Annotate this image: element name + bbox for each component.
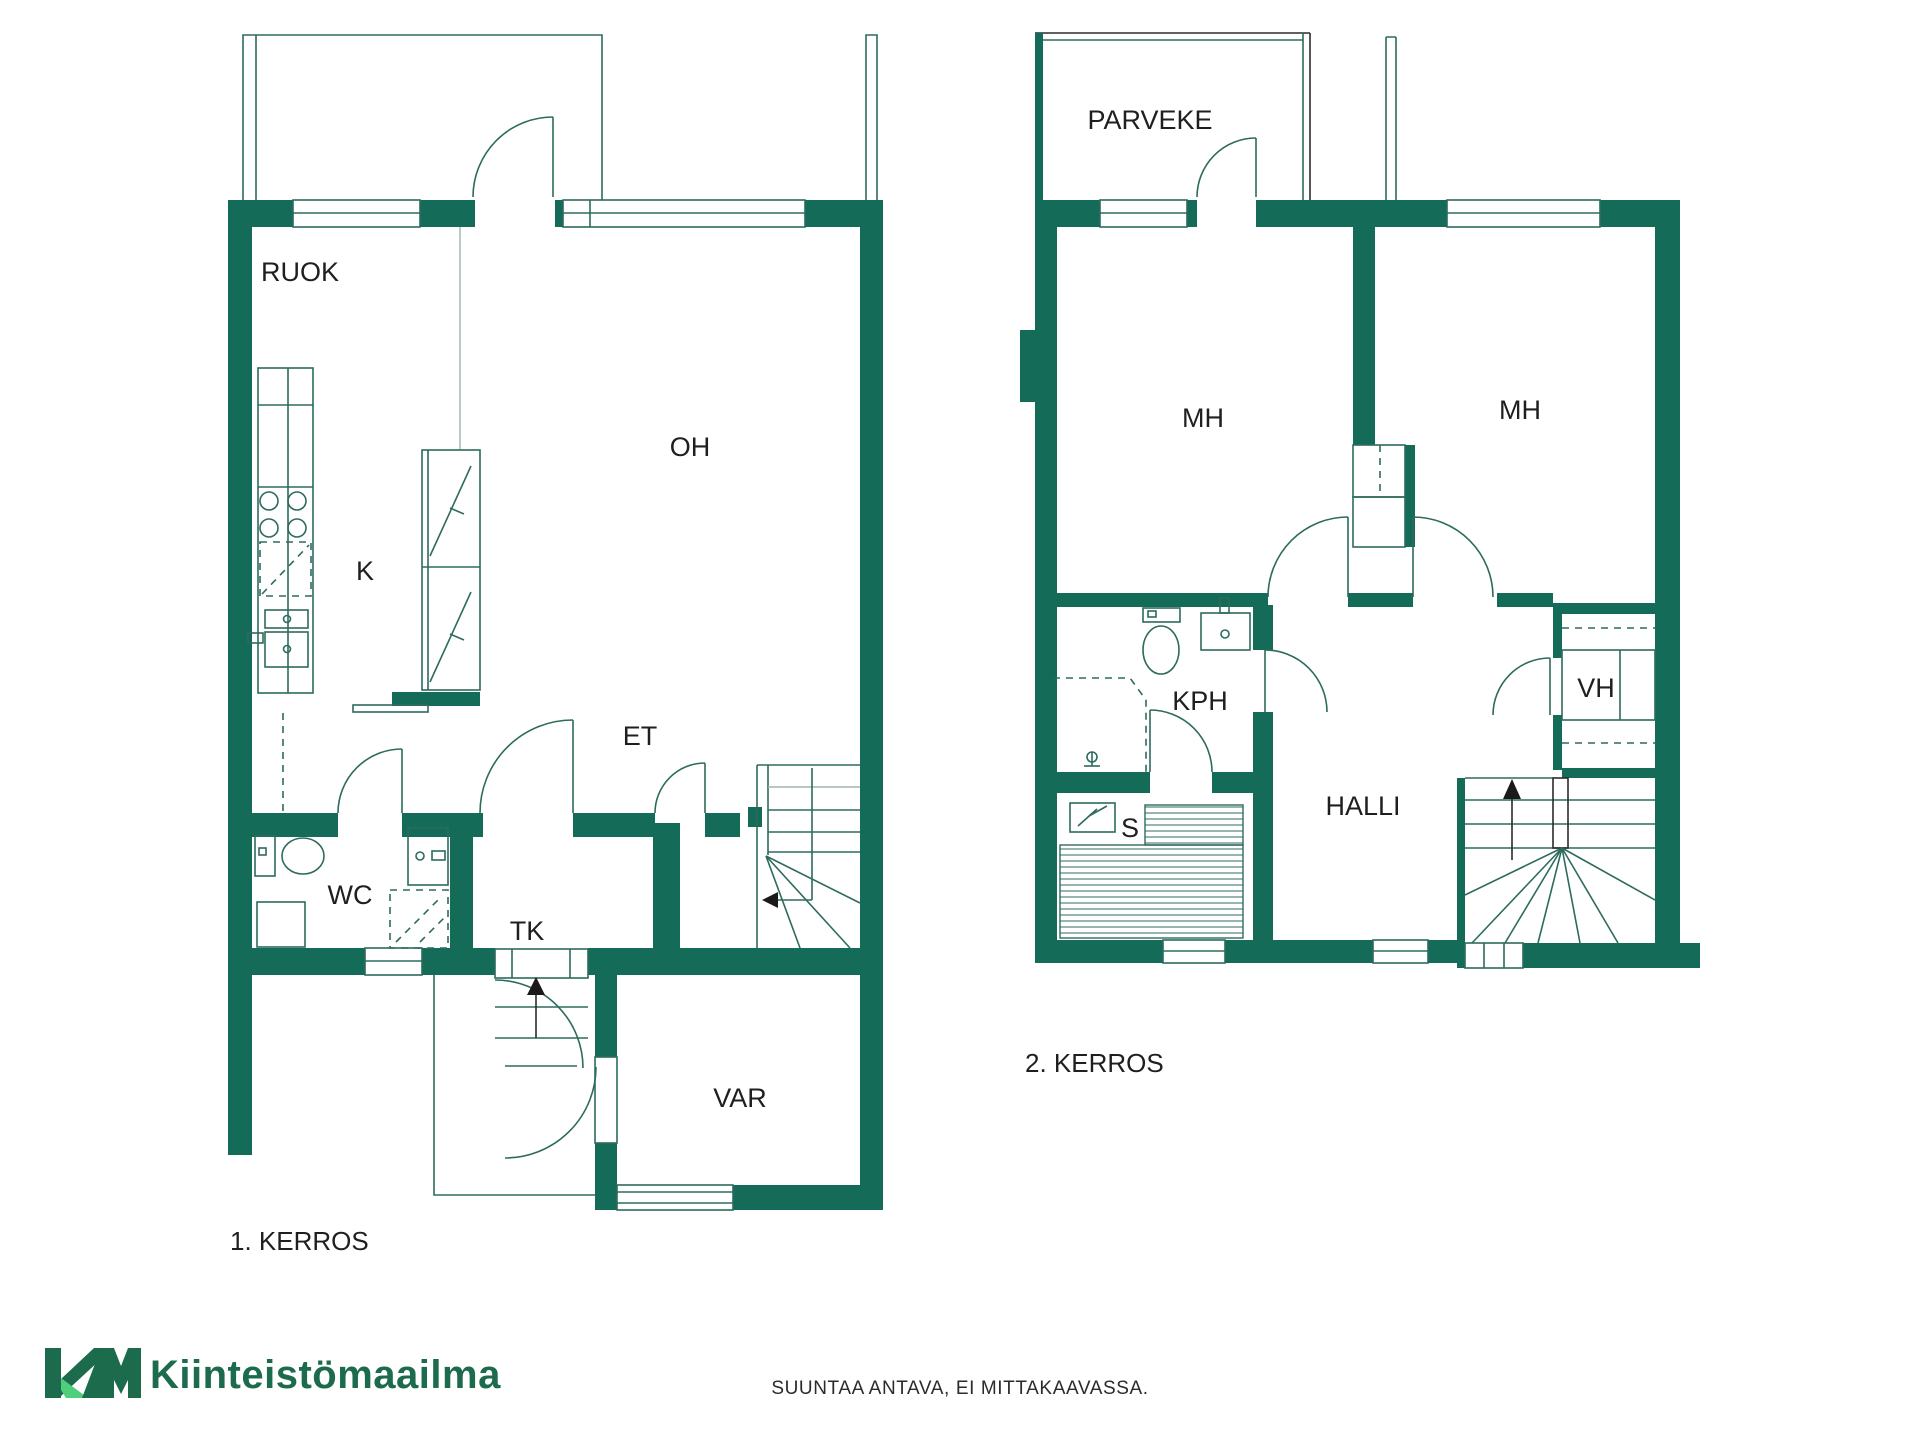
wall — [1428, 940, 1457, 963]
dishwasher-icon — [260, 542, 311, 596]
room-label-s: S — [1121, 813, 1139, 843]
kph-sauna-door — [1150, 710, 1212, 772]
wall — [1562, 768, 1655, 778]
kph-fixtures — [1053, 598, 1250, 772]
footer: Kiinteistömaailma SUUNTAA ANTAVA, EI MIT… — [45, 1348, 1149, 1399]
stair-nook-door — [655, 763, 705, 813]
wall — [422, 948, 495, 975]
room-label-et: ET — [623, 721, 658, 751]
wall — [1187, 200, 1197, 227]
var-door-opening — [595, 1057, 617, 1143]
window — [293, 200, 420, 227]
sauna-benches — [1060, 845, 1243, 938]
sauna — [1060, 803, 1243, 938]
window — [1373, 940, 1428, 963]
disclaimer-text: SUUNTAA ANTAVA, EI MITTAKAAVASSA. — [771, 1378, 1148, 1399]
toilet-icon — [255, 836, 324, 876]
doors-1f — [338, 117, 705, 1158]
brand-name: Kiinteistömaailma — [150, 1353, 501, 1397]
wall — [1053, 593, 1268, 607]
kitchen-counter-icon — [248, 368, 313, 693]
hall-cabinets — [1353, 445, 1405, 547]
wall — [1553, 603, 1655, 614]
wall — [420, 200, 475, 227]
toilet-icon — [1143, 608, 1180, 674]
sauna-heater-icon — [1070, 803, 1115, 832]
sauna-benches — [1145, 805, 1243, 845]
wall — [573, 813, 655, 837]
room-label-ruok: RUOK — [261, 257, 339, 287]
wall — [1225, 940, 1373, 963]
floorplan-canvas: RUOK K OH ET WC TK VAR 1. KERROS — [0, 0, 1920, 1440]
wall — [1212, 772, 1253, 793]
wall — [1253, 712, 1273, 963]
caption-floor-1: 1. KERROS — [230, 1226, 369, 1256]
exterior-door-threshold — [495, 949, 588, 978]
window — [1465, 943, 1523, 968]
window — [563, 200, 805, 227]
porch-outline — [434, 975, 595, 1195]
room-label-kph: KPH — [1172, 686, 1228, 716]
caption-floor-2: 2. KERROS — [1025, 1048, 1164, 1078]
stairs-down-arrow-icon — [762, 892, 778, 908]
wall — [1553, 603, 1562, 658]
room-label-wc: WC — [328, 880, 373, 910]
room-label-var: VAR — [713, 1083, 767, 1113]
wall — [595, 1185, 617, 1210]
floor-plan-1f: RUOK K OH ET WC TK VAR 1. KERROS — [228, 35, 883, 1256]
stove-icon — [260, 492, 306, 537]
wall — [1253, 605, 1273, 650]
room-label-vh: VH — [1577, 673, 1615, 703]
doors-2f — [1150, 138, 1550, 772]
terrace-door — [473, 117, 553, 197]
wall — [653, 823, 680, 948]
vh-door — [1493, 658, 1550, 715]
staircase-1f — [757, 765, 860, 948]
wall — [1553, 715, 1562, 770]
wc-door — [338, 749, 402, 813]
balcony-door — [1197, 138, 1256, 197]
bedroom-left-door — [1268, 517, 1348, 597]
floor-plan-2f: PARVEKE MH MH KPH VH HALLI S 2. KERROS — [1020, 33, 1700, 1078]
shower-corner — [1053, 678, 1146, 772]
room-label-parveke: PARVEKE — [1087, 105, 1212, 135]
wall — [228, 200, 252, 1155]
wall — [1523, 943, 1700, 968]
wall — [1035, 772, 1150, 793]
bedroom-right-door — [1413, 517, 1493, 597]
room-labels-1f: RUOK K OH ET WC TK VAR — [261, 257, 767, 1113]
tk-door — [480, 720, 573, 813]
kitchen-sink-icon — [248, 610, 308, 667]
wall — [1457, 778, 1465, 945]
shower-icon — [1084, 752, 1100, 766]
cabinet — [257, 902, 305, 947]
fridge-cabinet-icon — [422, 450, 480, 690]
km-logo-icon — [45, 1348, 141, 1398]
room-label-k: K — [356, 556, 374, 586]
wall — [1256, 200, 1447, 227]
wall — [1497, 593, 1553, 607]
staircase-2f — [1465, 778, 1655, 943]
wall — [1348, 593, 1413, 607]
wall — [1035, 200, 1100, 227]
wall — [733, 1185, 883, 1210]
wall — [595, 975, 617, 1057]
wall — [1655, 200, 1680, 968]
wall — [555, 200, 563, 227]
window — [617, 1185, 733, 1210]
wall — [1035, 940, 1163, 963]
window — [1163, 940, 1225, 963]
wall — [392, 692, 480, 706]
hall-shelf — [353, 705, 428, 712]
hall-kph-door — [1265, 650, 1327, 712]
window — [1447, 200, 1600, 227]
window — [1100, 200, 1187, 227]
wall — [860, 200, 883, 1210]
wall — [228, 200, 293, 227]
wall — [1035, 33, 1043, 200]
window — [365, 948, 422, 975]
wall — [1020, 330, 1035, 402]
wall — [1353, 227, 1375, 445]
washing-machine-icon — [390, 890, 448, 948]
walls-1f — [228, 200, 883, 1210]
wall — [705, 813, 740, 837]
room-label-mh-right: MH — [1499, 395, 1541, 425]
terrace-outline — [243, 35, 877, 200]
wall — [450, 823, 473, 948]
wall — [595, 1143, 617, 1185]
wall — [1035, 200, 1057, 963]
room-label-oh: OH — [670, 432, 711, 462]
room-label-halli: HALLI — [1325, 791, 1400, 821]
room-label-mh-left: MH — [1182, 403, 1224, 433]
room-label-tk: TK — [510, 916, 545, 946]
wall — [588, 948, 860, 975]
wall — [228, 948, 365, 975]
wall — [1457, 943, 1465, 968]
wall — [228, 813, 338, 837]
wall — [748, 807, 762, 827]
